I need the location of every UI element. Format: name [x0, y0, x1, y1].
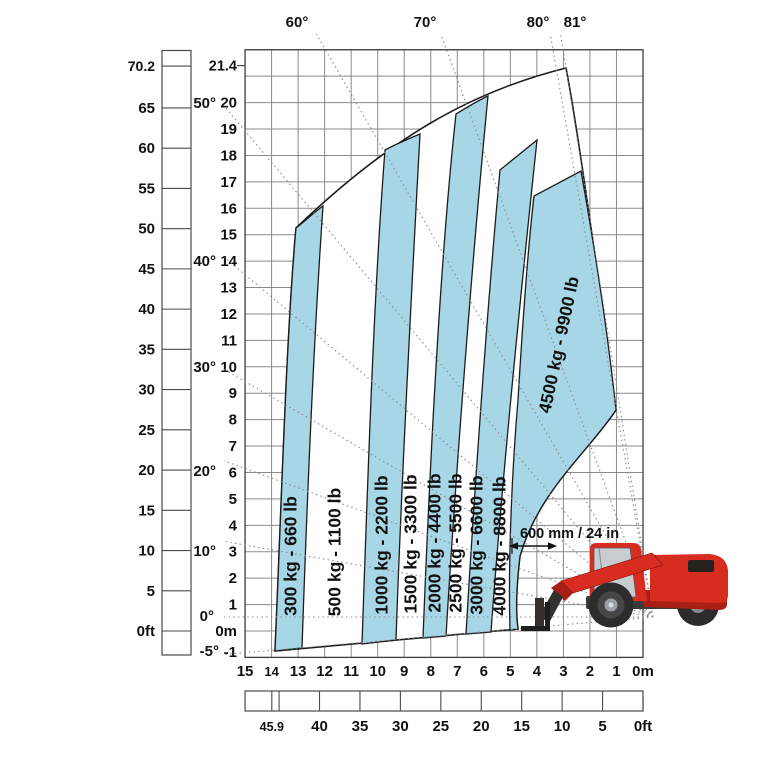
reach-m-tick-label: 1 [612, 663, 620, 680]
height-m-tick-label: 4 [229, 517, 238, 534]
load-chart: 70.265605550454035302520151050ft21.42019… [0, 0, 768, 768]
height-ft-tick-label: 35 [138, 341, 155, 358]
boom-angle-label: 0° [200, 608, 214, 625]
boom-angle-label: 80° [527, 14, 550, 31]
capacity-zone-label: 1000 kg - 2200 lb [372, 475, 392, 614]
height-m-tick-label: 19 [220, 121, 237, 138]
reach-m-tick-label: 15 [237, 663, 254, 680]
capacity-zone-label: 4000 kg - 8800 lb [490, 476, 510, 615]
capacity-zone-label: 1500 kg - 3300 lb [401, 474, 421, 613]
capacity-zone-label: 500 kg - 1100 lb [325, 488, 345, 616]
height-m-tick-label: 5 [229, 491, 237, 508]
height-m-tick-label: 3 [229, 544, 237, 561]
reach-m-tick-label: 7 [453, 663, 461, 680]
telehandler-illustration [521, 543, 728, 631]
height-m-tick-label: 7 [229, 438, 237, 455]
reach-axis-m: 1514131211109876543210m [237, 663, 654, 680]
reach-m-tick-label: 13 [290, 663, 307, 680]
reach-ft-tick-label: 30 [392, 718, 409, 735]
height-m-tick-label: 9 [229, 385, 237, 402]
boom-angle-label: -5° [200, 643, 219, 660]
height-ft-tick-label: 65 [138, 100, 155, 117]
boom-angle-label: 50° [193, 95, 216, 112]
height-ft-tick-label: 55 [138, 180, 155, 197]
height-ft-tick-label: 50 [138, 221, 155, 238]
height-ft-tick-label: 60 [138, 140, 155, 157]
reach-m-tick-label: 4 [533, 663, 542, 680]
reach-ft-tick-label: 0ft [634, 718, 652, 735]
capacity-zone-label: 2500 kg - 5500 lb [446, 473, 466, 612]
height-m-tick-label: 0m [215, 623, 237, 640]
height-m-tick-label: 16 [220, 200, 237, 217]
height-ft-tick-label: 70.2 [128, 58, 155, 74]
reach-m-tick-label: 6 [480, 663, 488, 680]
boom-angle-label: 60° [286, 14, 309, 31]
boom-angle-label: 10° [193, 543, 216, 560]
height-ft-tick-label: 5 [147, 583, 155, 600]
reach-m-tick-label: 3 [559, 663, 567, 680]
reach-m-tick-label: 9 [400, 663, 408, 680]
height-ft-tick-label: 25 [138, 422, 155, 439]
boom-angle-label: 20° [193, 463, 216, 480]
height-m-tick-label: 14 [220, 253, 237, 270]
height-m-tick-label: -1 [224, 644, 237, 661]
reach-ft-tick-label: 35 [352, 718, 369, 735]
height-m-tick-label: 17 [220, 174, 237, 191]
boom-angle-label: 40° [193, 253, 216, 270]
reach-m-tick-label: 11 [343, 663, 359, 680]
height-m-tick-label: 8 [229, 412, 237, 429]
height-m-tick-label: 13 [220, 280, 237, 297]
height-m-tick-label: 11 [221, 332, 237, 349]
height-ft-tick-label: 45 [138, 261, 155, 278]
height-m-tick-label: 10 [220, 359, 237, 376]
reach-ft-tick-label: 25 [432, 718, 449, 735]
reach-ft-tick-label: 45.9 [260, 720, 284, 734]
capacity-zone-label: 3000 kg - 6600 lb [467, 475, 487, 614]
boom-angle-label: 30° [193, 359, 216, 376]
load-center-note: 600 mm / 24 in [520, 526, 619, 542]
reach-m-tick-label: 8 [427, 663, 435, 680]
reach-ft-tick-label: 20 [473, 718, 490, 735]
reach-ft-tick-label: 10 [554, 718, 571, 735]
capacity-zone-label: 300 kg - 660 lb [281, 496, 301, 616]
height-ft-tick-label: 0ft [137, 623, 155, 640]
boom-angle-label: 81° [564, 14, 587, 31]
load-chart-figure: 70.265605550454035302520151050ft21.42019… [0, 0, 768, 768]
height-m-tick-label: 15 [220, 227, 237, 244]
boom-angle-label: 70° [414, 14, 437, 31]
height-m-tick-label: 6 [229, 464, 237, 481]
height-m-tick-label: 18 [220, 147, 237, 164]
reach-axis-ft: 45.94035302520151050ft [245, 691, 652, 735]
height-ft-tick-label: 20 [138, 462, 155, 479]
height-m-tick-label: 1 [229, 597, 237, 614]
height-m-tick-label: 21.4 [209, 59, 237, 75]
height-m-tick-label: 20 [220, 95, 237, 112]
height-ft-tick-label: 30 [138, 382, 155, 399]
arrow-right-icon [548, 542, 557, 550]
reach-m-tick-label: 10 [369, 663, 386, 680]
height-axis-ft: 70.265605550454035302520151050ft [128, 51, 191, 656]
reach-m-tick-label: 12 [316, 663, 333, 680]
reach-m-tick-label: 0m [632, 663, 654, 680]
reach-ft-tick-label: 40 [311, 718, 328, 735]
reach-m-tick-label: 2 [586, 663, 594, 680]
height-m-tick-label: 2 [229, 570, 237, 587]
reach-ft-tick-label: 5 [598, 718, 606, 735]
height-m-tick-label: 12 [220, 306, 237, 323]
height-ft-tick-label: 15 [138, 502, 155, 519]
height-ft-tick-label: 10 [138, 543, 155, 560]
reach-m-tick-label: 14 [264, 664, 279, 679]
reach-ft-tick-label: 15 [513, 718, 530, 735]
reach-m-tick-label: 5 [506, 663, 514, 680]
height-ft-tick-label: 40 [138, 301, 155, 318]
capacity-zone-label: 2000 kg - 4400 lb [425, 473, 445, 612]
